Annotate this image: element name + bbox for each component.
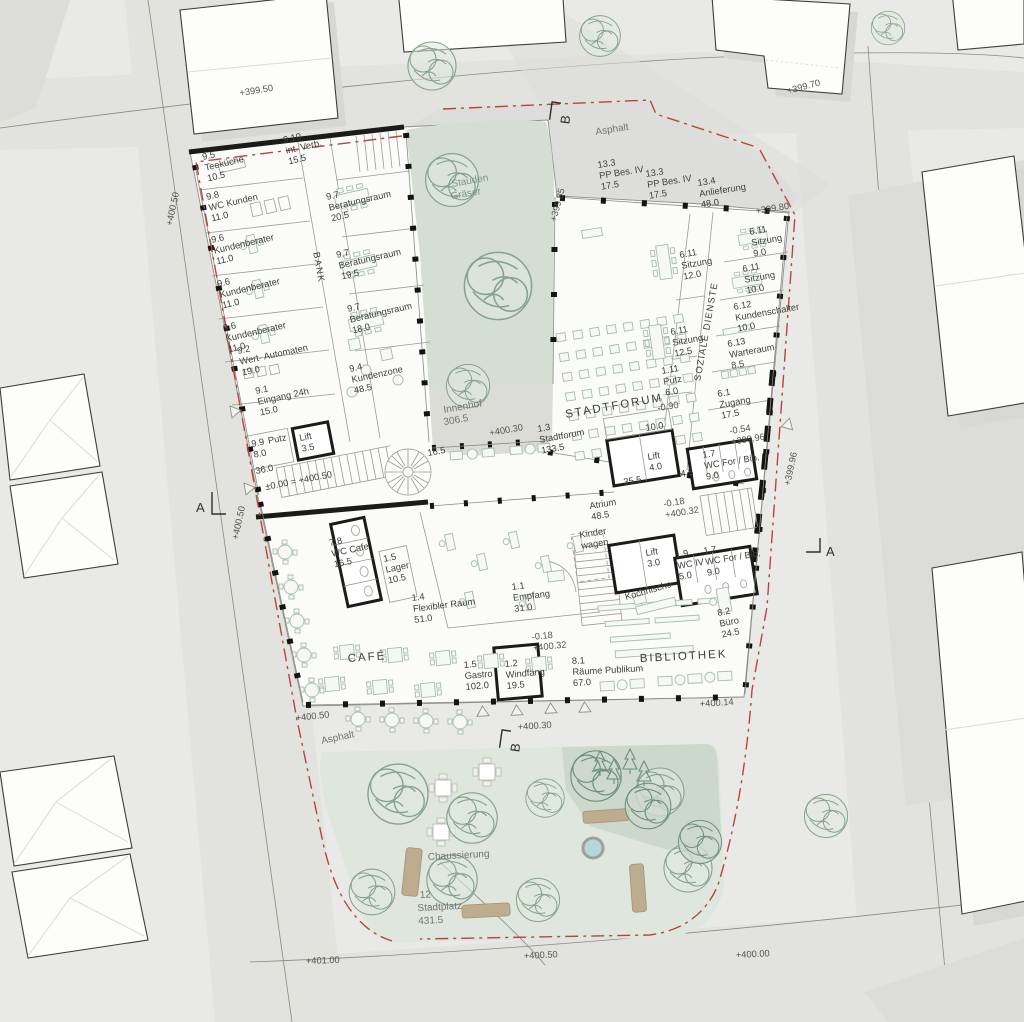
courtyard-planting: [406, 120, 554, 389]
level-street-bl: +401.00: [306, 955, 340, 966]
niche-area: 4.5: [680, 467, 694, 479]
building-top-far-right: [952, 0, 1024, 50]
level-platz-bottom: +400.50: [524, 949, 558, 961]
spiral-stair: [385, 449, 431, 495]
building-top-left: [180, 0, 338, 134]
cafe-title: CAFÉ: [347, 649, 386, 665]
svg-text:A: A: [196, 500, 205, 515]
building-bottom-left-1: [0, 756, 132, 866]
site-plan-drawing: B B A A 9.5Teeküche10.5 9.10int. Verb.15…: [0, 0, 1024, 1022]
building-left-mid-1: [0, 374, 100, 480]
svg-text:A: A: [826, 544, 835, 559]
floor-plan-sheet: B B A A 9.5Teeküche10.5 9.10int. Verb.15…: [0, 0, 1024, 1022]
building-left-mid-2: [10, 472, 118, 578]
pond: [583, 838, 603, 858]
level-street-br: +400.00: [736, 948, 770, 960]
kinderwagen-label: Kinderwagen: [578, 526, 609, 551]
building-bottom-left-2: [12, 854, 148, 958]
